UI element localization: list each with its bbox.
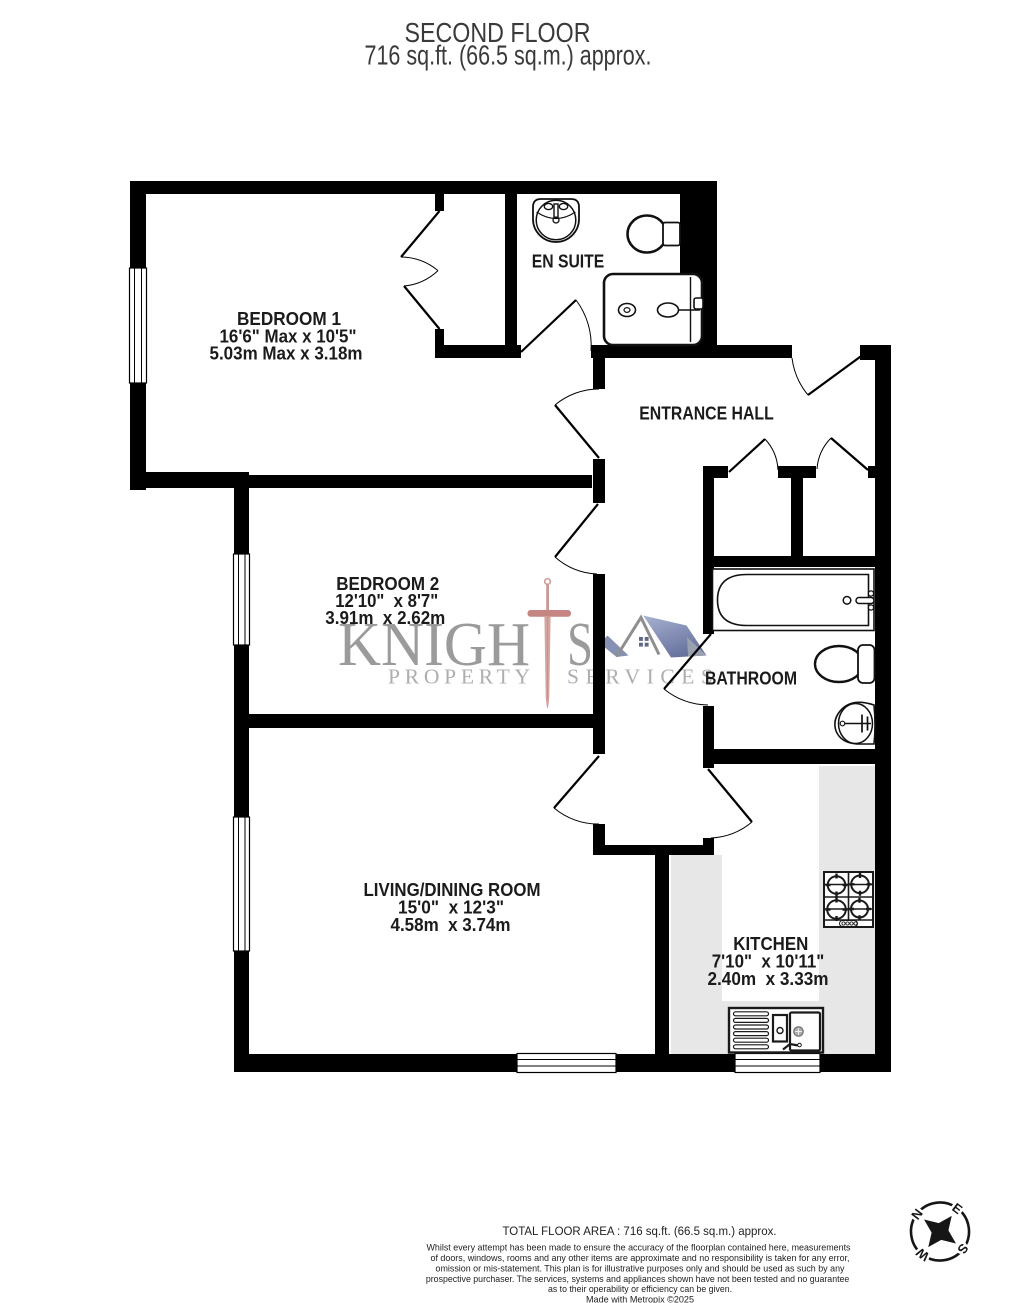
- svg-text:of doors, windows, rooms and a: of doors, windows, rooms and any other i…: [431, 1253, 850, 1263]
- svg-text:SERVICES: SERVICES: [567, 665, 713, 689]
- svg-text:as to their operability or eff: as to their operability or efficiency ca…: [548, 1284, 732, 1294]
- svg-text:2.40m x 3.33m: 2.40m x 3.33m: [708, 969, 829, 989]
- svg-text:Whilst every attempt has been: Whilst every attempt has been made to en…: [427, 1243, 851, 1253]
- svg-text:Made with Metropix ©2025: Made with Metropix ©2025: [586, 1295, 694, 1303]
- svg-text:TOTAL FLOOR AREA : 716 sq.ft.: TOTAL FLOOR AREA : 716 sq.ft. (66.5 sq.m…: [503, 1224, 777, 1238]
- svg-text:4.58m x 3.74m: 4.58m x 3.74m: [391, 915, 511, 935]
- svg-text:EN SUITE: EN SUITE: [532, 252, 605, 272]
- svg-text:omission or mis-statement. Thi: omission or mis-statement. This plan is …: [436, 1263, 845, 1273]
- svg-text:ENTRANCE HALL: ENTRANCE HALL: [639, 404, 774, 424]
- svg-text:BATHROOM: BATHROOM: [705, 669, 797, 689]
- svg-text:716 sq.ft. (66.5 sq.m.) approx: 716 sq.ft. (66.5 sq.m.) approx.: [365, 40, 652, 71]
- svg-text:5.03m Max x 3.18m: 5.03m Max x 3.18m: [210, 344, 363, 364]
- svg-text:prospective purchaser. The ser: prospective purchaser. The services, sys…: [426, 1274, 850, 1284]
- svg-text:3.91m x 2.62m: 3.91m x 2.62m: [325, 608, 445, 628]
